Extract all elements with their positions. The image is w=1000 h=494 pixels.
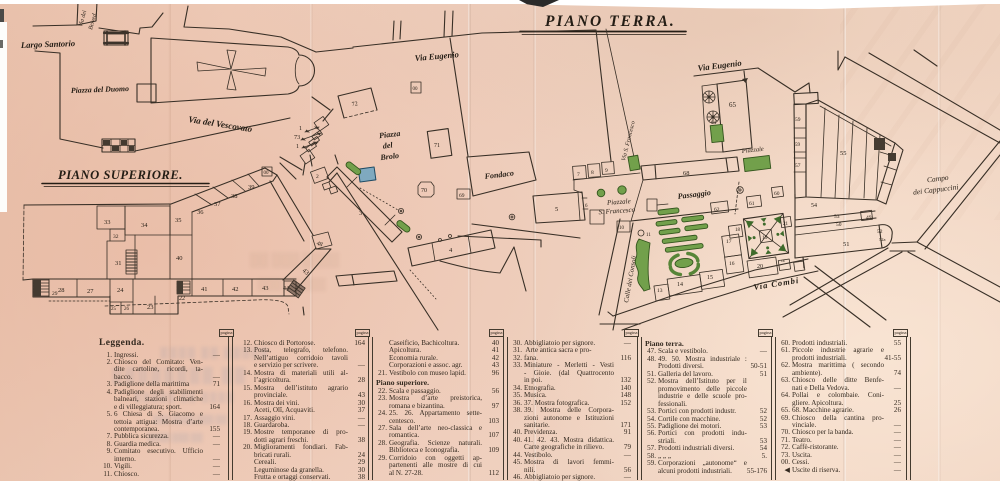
svg-text:50: 50 bbox=[836, 222, 842, 228]
svg-text:7: 7 bbox=[577, 172, 580, 178]
svg-text:10: 10 bbox=[619, 226, 625, 231]
svg-text:52a: 52a bbox=[879, 237, 886, 242]
svg-text:19: 19 bbox=[762, 235, 768, 241]
svg-text:49: 49 bbox=[866, 215, 872, 221]
svg-text:61: 61 bbox=[749, 201, 755, 207]
svg-text:22: 22 bbox=[179, 296, 185, 302]
svg-text:31: 31 bbox=[115, 260, 122, 267]
svg-text:Via del Vescovato: Via del Vescovato bbox=[188, 114, 254, 134]
svg-text:24: 24 bbox=[117, 287, 124, 294]
svg-text:Piazza del Duomo: Piazza del Duomo bbox=[71, 84, 129, 95]
svg-text:21: 21 bbox=[783, 222, 789, 227]
svg-text:71: 71 bbox=[434, 143, 440, 149]
svg-text:69: 69 bbox=[459, 193, 465, 199]
svg-text:17: 17 bbox=[726, 239, 732, 245]
svg-text:PIANO SUPERIORE.: PIANO SUPERIORE. bbox=[58, 168, 183, 182]
svg-text:ca: ca bbox=[781, 258, 785, 263]
svg-text:26: 26 bbox=[124, 307, 130, 312]
svg-text:16: 16 bbox=[729, 261, 735, 267]
svg-text:36: 36 bbox=[197, 209, 204, 216]
svg-text:72: 72 bbox=[351, 101, 358, 108]
svg-text:28: 28 bbox=[58, 287, 65, 294]
svg-text:14: 14 bbox=[677, 282, 683, 288]
svg-text:68: 68 bbox=[683, 170, 690, 177]
svg-text:Belved.: Belved. bbox=[88, 12, 98, 31]
svg-text:37: 37 bbox=[214, 201, 221, 208]
svg-text:00: 00 bbox=[413, 87, 419, 92]
svg-text:Via Eugenio: Via Eugenio bbox=[414, 49, 459, 63]
svg-text:64: 64 bbox=[711, 121, 717, 126]
svg-text:PIANO TERRA.: PIANO TERRA. bbox=[545, 13, 676, 30]
svg-text:del: del bbox=[382, 140, 394, 150]
svg-text:27: 27 bbox=[87, 288, 94, 295]
svg-text:70: 70 bbox=[421, 188, 427, 194]
svg-text:Campo: Campo bbox=[926, 173, 949, 185]
svg-text:1: 1 bbox=[299, 125, 302, 132]
svg-text:55: 55 bbox=[840, 150, 847, 157]
svg-text:Piazza: Piazza bbox=[379, 129, 401, 141]
svg-text:73: 73 bbox=[294, 134, 300, 141]
svg-text:53: 53 bbox=[834, 214, 840, 220]
svg-text:60: 60 bbox=[774, 191, 780, 197]
svg-text:62: 62 bbox=[714, 207, 720, 213]
svg-text:6: 6 bbox=[585, 204, 588, 209]
svg-text:40: 40 bbox=[176, 255, 183, 262]
svg-text:59: 59 bbox=[795, 117, 801, 123]
svg-text:Passaggio: Passaggio bbox=[677, 188, 711, 201]
svg-text:4: 4 bbox=[449, 247, 453, 254]
svg-text:Via S. Francesco: Via S. Francesco bbox=[621, 121, 637, 162]
svg-text:Via dei: Via dei bbox=[78, 9, 88, 27]
svg-text:8: 8 bbox=[591, 170, 594, 176]
svg-text:33: 33 bbox=[104, 219, 111, 226]
svg-text:5: 5 bbox=[555, 206, 558, 213]
svg-text:51: 51 bbox=[843, 241, 850, 248]
svg-text:15: 15 bbox=[707, 275, 713, 281]
svg-text:Via Combi: Via Combi bbox=[753, 275, 800, 292]
svg-text:35: 35 bbox=[175, 217, 182, 224]
svg-text:54: 54 bbox=[811, 203, 817, 209]
svg-text:29: 29 bbox=[52, 291, 58, 297]
svg-text:43: 43 bbox=[262, 285, 269, 292]
svg-text:59: 59 bbox=[795, 143, 801, 148]
svg-text:34: 34 bbox=[141, 222, 148, 229]
svg-text:38: 38 bbox=[231, 193, 238, 200]
svg-text:65: 65 bbox=[729, 101, 737, 109]
svg-text:Largo Santorio: Largo Santorio bbox=[20, 38, 76, 50]
svg-text:41: 41 bbox=[201, 286, 208, 293]
svg-text:23: 23 bbox=[147, 304, 154, 311]
svg-text:Fondaco: Fondaco bbox=[483, 168, 514, 181]
svg-text:42: 42 bbox=[232, 286, 239, 293]
svg-text:52: 52 bbox=[877, 229, 883, 235]
svg-text:13: 13 bbox=[657, 288, 663, 294]
svg-text:Brolo: Brolo bbox=[379, 151, 400, 162]
svg-text:32: 32 bbox=[113, 234, 119, 240]
svg-text:dei Cappuccini: dei Cappuccini bbox=[913, 182, 959, 196]
svg-text:1: 1 bbox=[296, 143, 299, 150]
svg-text:11: 11 bbox=[646, 233, 651, 238]
svg-text:9: 9 bbox=[605, 168, 608, 174]
svg-text:2: 2 bbox=[316, 174, 319, 180]
svg-text:18: 18 bbox=[735, 228, 741, 233]
svg-text:00: 00 bbox=[264, 171, 270, 176]
svg-text:25: 25 bbox=[111, 307, 117, 312]
svg-text:39: 39 bbox=[248, 184, 255, 191]
svg-text:57: 57 bbox=[795, 163, 801, 169]
